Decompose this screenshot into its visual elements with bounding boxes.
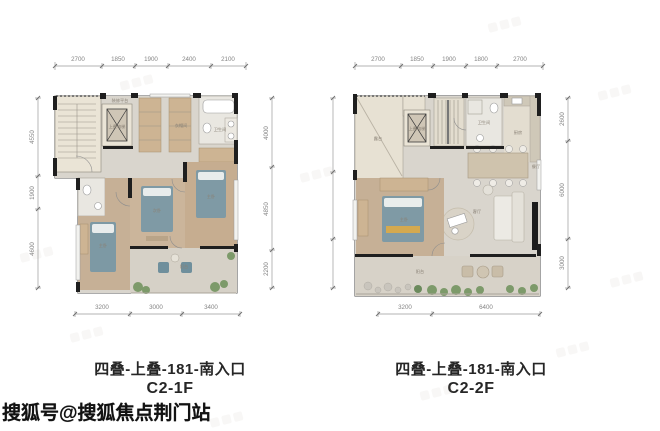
dimension-bottom: 3200 3000 3400 xyxy=(73,304,242,317)
staircase xyxy=(55,96,101,172)
bathroom-top xyxy=(199,96,237,144)
room-label: 卫生间 xyxy=(214,126,227,133)
floorplan-c2-1f: 装修平台 上叠电梯 衣帽间 卫生间 主卧 次卧 主卧 阳台 2700 1850 … xyxy=(0,0,330,345)
ottoman xyxy=(483,185,493,195)
dim-value: 2200 xyxy=(263,262,270,276)
dim-value: 4000 xyxy=(263,126,270,140)
room-label: 露台 xyxy=(374,135,382,142)
room-label: 装修平台 xyxy=(112,97,129,104)
balcony-table xyxy=(171,254,179,262)
sohu-watermark: 搜狐号@搜狐焦点荆门站 xyxy=(2,398,211,425)
sink xyxy=(477,135,484,142)
balcony-table xyxy=(477,266,489,278)
room-label: 主卧 xyxy=(207,193,215,200)
dimension-top: 2700 1850 1900 1800 2700 xyxy=(353,56,545,70)
dim-value: 2600 xyxy=(559,112,566,126)
bathtub xyxy=(203,100,234,113)
plan2-title: 四叠-上叠-181-南入口 C2-2F xyxy=(306,358,636,398)
bedroom-middle xyxy=(130,178,185,248)
dimension-right: 4000 4850 2200 xyxy=(263,96,275,290)
room-label: 上叠电梯 xyxy=(109,123,126,130)
bathroom-left xyxy=(78,178,105,216)
dim-value: 1900 xyxy=(144,56,158,63)
room-label: 餐厅 xyxy=(532,163,540,170)
bedroom-right xyxy=(185,162,237,248)
desk-chair xyxy=(452,228,458,234)
dim-value: 4550 xyxy=(29,130,36,144)
dimension-top: 2700 1850 1900 2400 2100 xyxy=(53,56,248,70)
dim-value: 3200 xyxy=(95,304,109,311)
bed-runner xyxy=(386,226,420,233)
faint-watermark xyxy=(209,411,243,428)
room-label: 主卧 xyxy=(400,216,408,223)
plan1-title-line1: 四叠-上叠-181-南入口 xyxy=(10,358,330,379)
room-label: 厨房 xyxy=(514,129,522,136)
dim-value: 2100 xyxy=(221,56,235,63)
room-label: 主卧 xyxy=(99,242,107,249)
sofa xyxy=(494,196,514,240)
dimension-bottom: 3200 6400 xyxy=(376,304,542,317)
dim-value: 4050 xyxy=(330,199,331,213)
dim-value: 4550 xyxy=(330,128,331,142)
dresser xyxy=(358,200,368,236)
floorplan-c2-2f: 露台 上叠电梯 卫生间 厨房 餐厅 客厅 主卧 阳台 2700 1850 190… xyxy=(330,0,660,345)
dim-value: 2400 xyxy=(182,56,196,63)
dimension-left: 4550 4050 3000 xyxy=(330,96,336,290)
balcony xyxy=(355,256,540,296)
dim-value: 3000 xyxy=(149,304,163,311)
toilet xyxy=(490,103,498,113)
dimension-left: 4550 1900 4600 xyxy=(29,96,41,290)
dim-value: 1850 xyxy=(111,56,125,63)
dim-value: 3400 xyxy=(204,304,218,311)
dim-value: 1900 xyxy=(442,56,456,63)
toilet xyxy=(83,185,91,195)
balcony-chair xyxy=(492,266,503,277)
room-label: 阳台 xyxy=(416,268,424,275)
dim-value: 3000 xyxy=(559,256,566,270)
room-label: 次卧 xyxy=(153,207,161,214)
dim-value: 1800 xyxy=(474,56,488,63)
plan2-title-line1: 四叠-上叠-181-南入口 xyxy=(306,358,636,379)
dim-value: 2700 xyxy=(371,56,385,63)
dim-value: 6000 xyxy=(559,183,566,197)
plan2-title-line2: C2-2F xyxy=(306,380,636,398)
dim-value: 6400 xyxy=(479,304,493,311)
dim-value: 4850 xyxy=(263,202,270,216)
wardrobe-strip xyxy=(199,148,237,162)
room-label: 上叠电梯 xyxy=(409,125,426,132)
room-label: 卫生间 xyxy=(478,119,491,126)
room-label: 衣帽间 xyxy=(175,122,188,129)
kitchen-sink xyxy=(512,98,522,104)
dim-value: 2700 xyxy=(513,56,527,63)
balcony-chair xyxy=(158,262,169,273)
dimension-right: 2600 6000 3000 xyxy=(559,96,571,290)
dim-value: 2700 xyxy=(71,56,85,63)
balcony xyxy=(130,248,237,294)
dim-value: 1900 xyxy=(29,186,36,200)
plan1-title: 四叠-上叠-181-南入口 C2-1F xyxy=(10,358,330,398)
dim-value: 3000 xyxy=(330,256,331,270)
room-label: 阳台 xyxy=(180,263,188,270)
room-label: 客厅 xyxy=(473,208,481,215)
plan1-title-line2: C2-1F xyxy=(10,380,330,398)
staircase xyxy=(434,98,464,146)
wardrobe xyxy=(380,178,428,191)
balcony-chair xyxy=(462,266,473,277)
toilet xyxy=(203,123,211,133)
sink xyxy=(95,203,102,210)
tv-console xyxy=(532,202,538,250)
dim-value: 3200 xyxy=(398,304,412,311)
dim-value: 1850 xyxy=(410,56,424,63)
